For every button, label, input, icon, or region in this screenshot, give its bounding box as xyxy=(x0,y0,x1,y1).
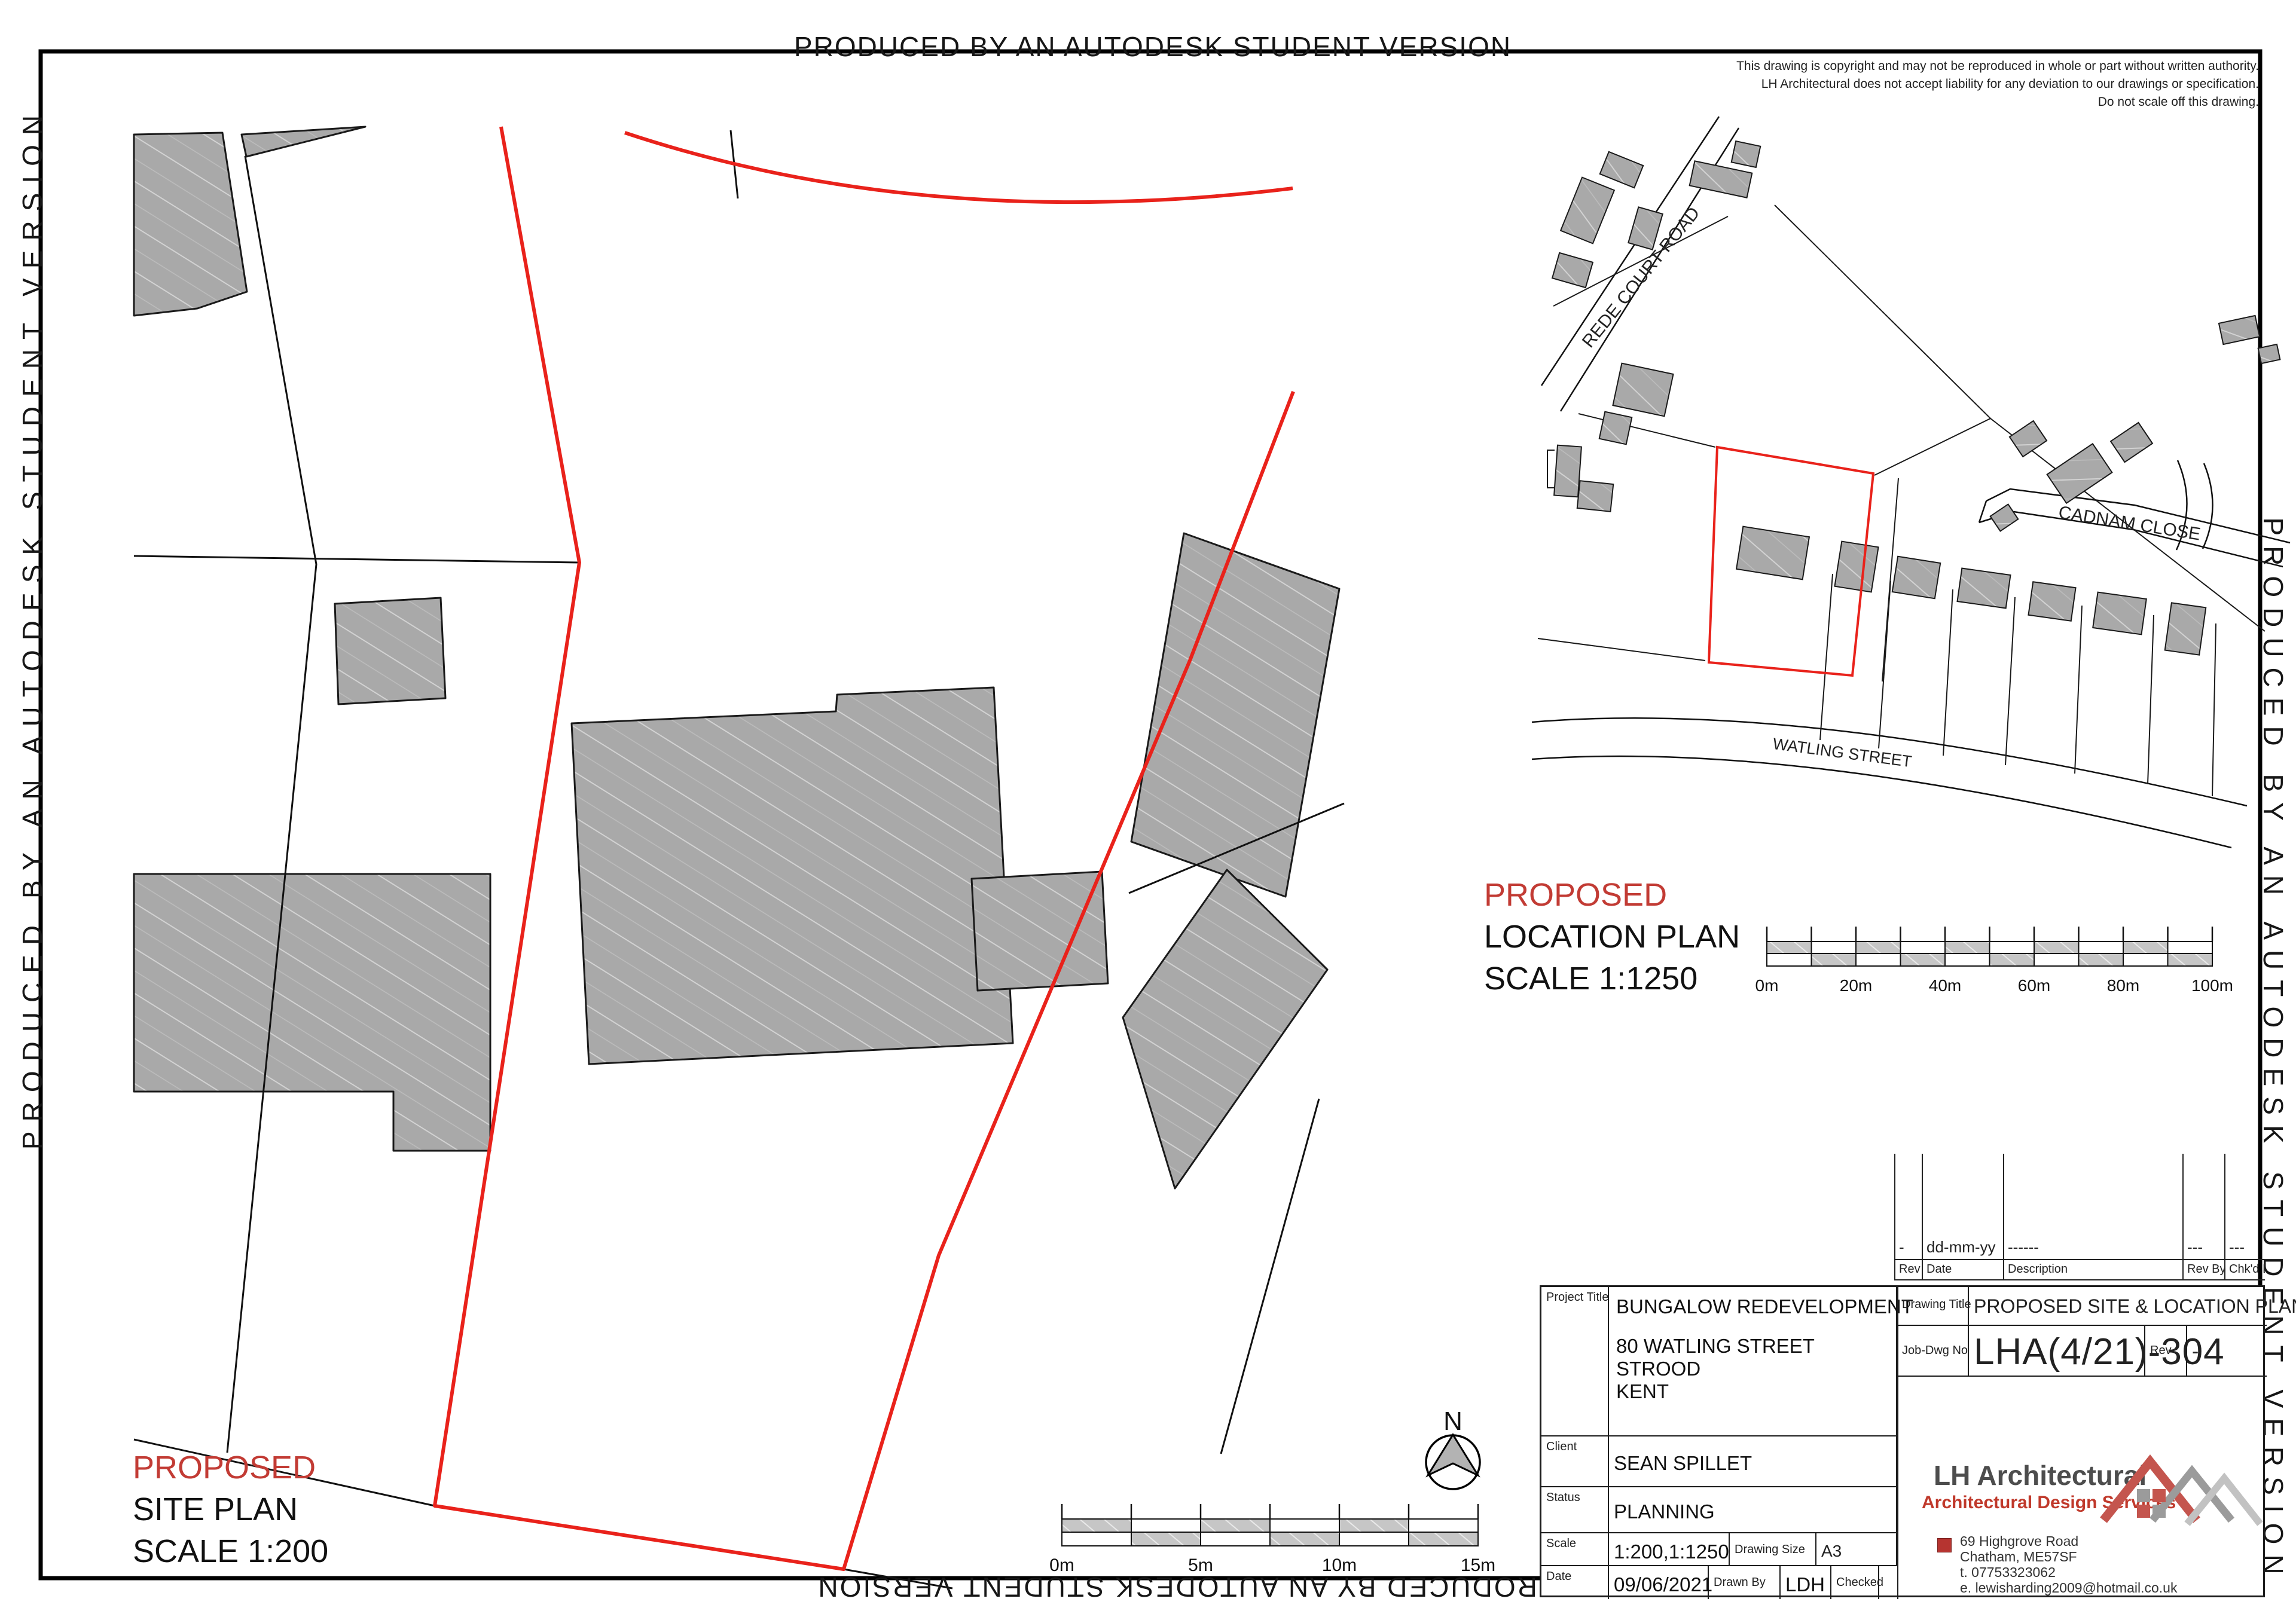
revision-row-rev: - xyxy=(1894,1237,1922,1259)
revision-row-date: dd-mm-yy xyxy=(1922,1237,2003,1259)
label-job-dwg-no: Job-Dwg No xyxy=(1897,1326,1969,1377)
label-drawing-title: Drawing Title xyxy=(1897,1287,1969,1326)
location-scalebar: 0m 20m 40m 60m 80m 100m xyxy=(1755,927,2233,995)
title-block: Project Title Client Status Scale Date B… xyxy=(1540,1285,2265,1597)
label-checked: Checked xyxy=(1831,1566,1879,1599)
location-caption-scale: SCALE 1:1250 xyxy=(1484,958,1740,1000)
job-dwg-no-value: LHA(4/21)-304 xyxy=(1969,1326,2145,1377)
drawing-size-value: A3 xyxy=(1816,1533,1897,1566)
label-drawn-by: Drawn By xyxy=(1709,1566,1781,1599)
location-road-labels: REDE COURT ROAD CADNAM CLOSE WATLING STR… xyxy=(1578,203,2202,771)
copyright-line: This drawing is copyright and may not be… xyxy=(1736,57,2259,75)
label-date: Date xyxy=(1541,1566,1609,1599)
location-scalebar-labels: 0m 20m 40m 60m 80m 100m xyxy=(1755,976,2233,995)
location-buildings xyxy=(1552,141,2280,655)
building xyxy=(134,874,490,1151)
site-scalebar: 0m 5m 10m 15m xyxy=(1049,1504,1495,1575)
building xyxy=(134,133,247,316)
firm-address-line: t. 07753323062 xyxy=(1960,1564,2177,1580)
label-rev: Rev xyxy=(2145,1326,2187,1377)
project-address-line: 80 WATLING STREET xyxy=(1616,1335,1891,1358)
north-arrow: N xyxy=(1426,1407,1480,1489)
revision-row-description: ------ xyxy=(2003,1237,2182,1259)
label-scale: Scale xyxy=(1541,1533,1609,1566)
project-address-line: KENT xyxy=(1616,1380,1891,1403)
site-buildings xyxy=(134,127,1339,1188)
location-parcel-lines xyxy=(1538,205,2265,796)
revision-header-date: Date xyxy=(1922,1259,2003,1280)
building xyxy=(242,127,365,157)
project-address-line: STROOD xyxy=(1616,1358,1891,1380)
revision-row-revby: --- xyxy=(2182,1237,2224,1259)
svg-text:40m: 40m xyxy=(1929,976,1961,995)
drawn-by-value: LDH xyxy=(1781,1566,1831,1599)
revision-table: - dd-mm-yy ------ --- --- Rev Date Descr… xyxy=(1894,1154,2265,1280)
firm-bullet-icon xyxy=(1937,1538,1952,1552)
building xyxy=(572,687,1013,1064)
label-drawing-size: Drawing Size xyxy=(1730,1533,1816,1566)
revision-header-revby: Rev By xyxy=(2182,1259,2224,1280)
firm-address-line: e. lewisharding2009@hotmail.co.uk xyxy=(1960,1580,2177,1596)
site-caption-title: SITE PLAN xyxy=(133,1488,328,1530)
site-caption-scale: SCALE 1:200 xyxy=(133,1530,328,1572)
svg-text:60m: 60m xyxy=(2018,976,2050,995)
svg-text:20m: 20m xyxy=(1840,976,1872,995)
location-caption-title: LOCATION PLAN xyxy=(1484,916,1740,958)
building xyxy=(1131,533,1339,897)
firm-logo-roofs-icon xyxy=(2097,1425,2265,1526)
rev-value: - xyxy=(2187,1326,2267,1377)
site-plan-caption: PROPOSED SITE PLAN SCALE 1:200 xyxy=(133,1447,328,1572)
copyright-line: LH Architectural does not accept liabili… xyxy=(1736,75,2259,93)
building xyxy=(335,598,445,704)
status-value: PLANNING xyxy=(1609,1487,1897,1533)
road-label-cadnam: CADNAM CLOSE xyxy=(2057,503,2202,545)
autodesk-banner-left: PRODUCED BY AN AUTODESK STUDENT VERSION xyxy=(16,106,48,1150)
label-client: Client xyxy=(1541,1436,1609,1487)
building xyxy=(1123,870,1327,1188)
site-plan-drawing xyxy=(134,127,1344,1588)
revision-header-chkdby: Chk'd By xyxy=(2224,1259,2265,1280)
scale-value: 1:200,1:1250 xyxy=(1609,1533,1730,1566)
firm-address: 69 Highgrove Road Chatham, ME57SF t. 077… xyxy=(1960,1533,2177,1596)
project-title-cell: BUNGALOW REDEVELOPMENT 80 WATLING STREET… xyxy=(1609,1287,1897,1436)
copyright-note: This drawing is copyright and may not be… xyxy=(1736,57,2259,111)
checked-value-empty xyxy=(1879,1566,1897,1599)
drawing-title-value: PROPOSED SITE & LOCATION PLAN xyxy=(1969,1287,2267,1326)
autodesk-banner-top: PRODUCED BY AN AUTODESK STUDENT VERSION xyxy=(794,30,1512,63)
location-caption-proposed: PROPOSED xyxy=(1484,874,1740,916)
copyright-line: Do not scale off this drawing. xyxy=(1736,93,2259,111)
revision-row-chkdby: --- xyxy=(2224,1237,2265,1259)
date-value: 09/06/2021 xyxy=(1609,1566,1709,1599)
location-plan-caption: PROPOSED LOCATION PLAN SCALE 1:1250 xyxy=(1484,874,1740,1000)
label-status: Status xyxy=(1541,1487,1609,1533)
project-title-value: BUNGALOW REDEVELOPMENT xyxy=(1616,1295,1891,1318)
north-label: N xyxy=(1443,1407,1463,1436)
location-plan-drawing: REDE COURT ROAD CADNAM CLOSE WATLING STR… xyxy=(1532,117,2290,848)
svg-text:80m: 80m xyxy=(2107,976,2139,995)
svg-text:0m: 0m xyxy=(1755,976,1779,995)
revision-header-rev: Rev xyxy=(1894,1259,1922,1280)
building xyxy=(972,872,1108,991)
site-caption-proposed: PROPOSED xyxy=(133,1447,328,1488)
svg-text:100m: 100m xyxy=(2191,976,2233,995)
firm-address-line: 69 Highgrove Road xyxy=(1960,1533,2177,1549)
label-project-title: Project Title xyxy=(1541,1287,1609,1436)
revision-header-description: Description xyxy=(2003,1259,2182,1280)
autodesk-banner-bottom: PRODUCED BY AN AUTODESK STUDENT VERSION xyxy=(816,1571,1557,1603)
firm-address-line: Chatham, ME57SF xyxy=(1960,1549,2177,1564)
client-value: SEAN SPILLET xyxy=(1609,1436,1897,1487)
